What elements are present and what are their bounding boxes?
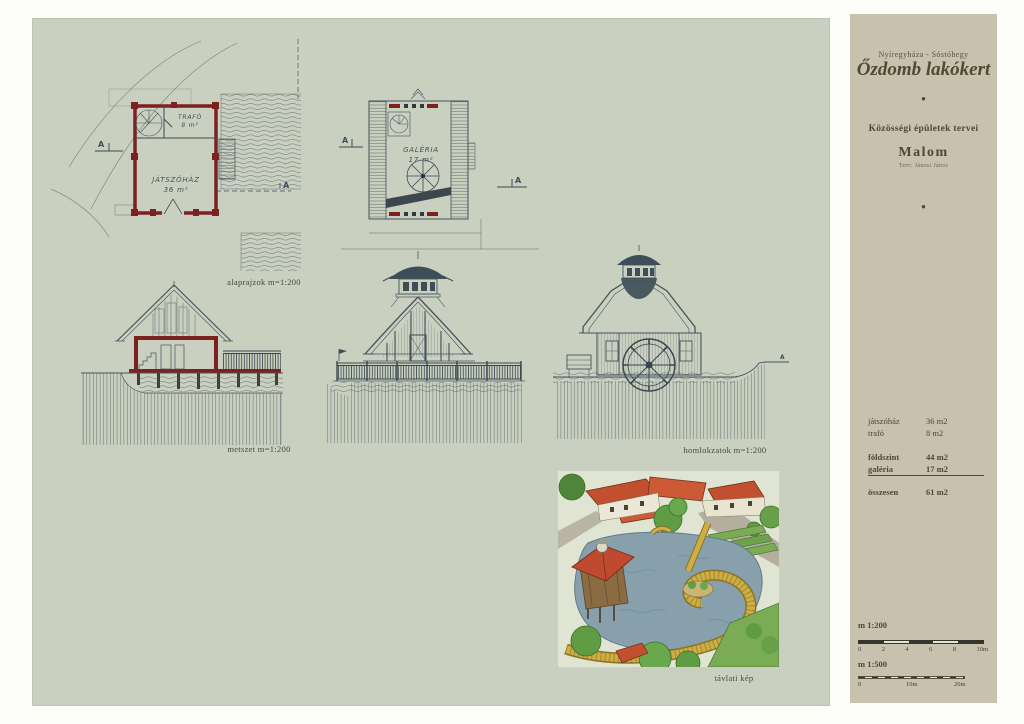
area-name: játszóház bbox=[868, 415, 926, 427]
area-value: 17 m2 bbox=[926, 463, 948, 475]
section-marker-a-right: A bbox=[515, 176, 522, 185]
tick: 0 bbox=[858, 646, 861, 653]
tick: 4 bbox=[905, 646, 908, 653]
area-name: összesen bbox=[868, 486, 926, 498]
area-value: 36 m2 bbox=[926, 415, 948, 427]
drawing-sheet: TRAFÓ 8 m² JÁTSZÓHÁZ 36 m² A A bbox=[32, 18, 830, 706]
room-area-jatszohaz: 36 m² bbox=[164, 186, 189, 194]
project-location: Nyíregyháza - Sóstóhegy bbox=[850, 50, 997, 59]
area-value: 44 m2 bbox=[926, 451, 948, 463]
area-table: játszóház 36 m2 trafó 8 m2 földszint 44 … bbox=[868, 415, 984, 498]
section-marker-a-right: A bbox=[283, 181, 290, 190]
section-drawing bbox=[61, 281, 311, 449]
caption-section: metszet m=1:200 bbox=[189, 444, 329, 454]
area-name: trafó bbox=[868, 427, 926, 439]
room-label-galeria: GALÉRIA bbox=[403, 145, 439, 154]
tick: 10m bbox=[906, 681, 918, 688]
scalebar-500 bbox=[858, 676, 965, 679]
tick: 2 bbox=[882, 646, 885, 653]
front-elevation-drawing bbox=[319, 249, 529, 447]
area-row: földszint 44 m2 bbox=[868, 451, 984, 463]
section-marker-a: A bbox=[780, 354, 785, 361]
scalebar-200 bbox=[858, 640, 984, 644]
section-marker-a-left: A bbox=[342, 136, 349, 145]
room-label-jatszohaz: JÁTSZÓHÁZ bbox=[150, 175, 199, 184]
gallery-floor-plan-drawing: GALÉRIA 17 m² A A bbox=[331, 81, 541, 266]
room-label-trafo: TRAFÓ bbox=[178, 114, 202, 121]
side-elevation-drawing: A bbox=[549, 241, 791, 449]
area-row: játszóház 36 m2 bbox=[868, 415, 984, 427]
tick: 0 bbox=[858, 681, 861, 688]
caption-elevations: homlokzatok m=1:200 bbox=[655, 445, 795, 455]
area-row: összesen 61 m2 bbox=[868, 486, 984, 498]
tick: 8 bbox=[953, 646, 956, 653]
area-row: trafó 8 m2 bbox=[868, 427, 984, 439]
architect-credit: Terv: Jánosi János bbox=[850, 163, 997, 169]
ground-floor-plan-drawing: TRAFÓ 8 m² JÁTSZÓHÁZ 36 m² A A bbox=[51, 39, 321, 274]
title-panel: Nyíregyháza - Sóstóhegy Őzdomb lakókert … bbox=[850, 14, 997, 703]
area-value: 61 m2 bbox=[926, 486, 948, 498]
sheet-subtitle: Közösségi épületek tervei bbox=[850, 124, 997, 134]
area-row: galéria 17 m2 bbox=[868, 463, 984, 476]
scalebar-200-label: m 1:200 bbox=[858, 620, 887, 630]
area-value: 8 m2 bbox=[926, 427, 943, 439]
presentation-board: TRAFÓ 8 m² JÁTSZÓHÁZ 36 m² A A bbox=[0, 0, 1024, 724]
building-name: Malom bbox=[850, 145, 997, 161]
area-name: galéria bbox=[868, 463, 926, 475]
area-name: földszint bbox=[868, 451, 926, 463]
divider-dot: ● bbox=[850, 94, 997, 103]
caption-perspective: távlati kép bbox=[664, 673, 804, 683]
room-area-galeria: 17 m² bbox=[409, 156, 434, 164]
scalebar-500-label: m 1:500 bbox=[858, 659, 887, 669]
tick: 20m bbox=[954, 681, 966, 688]
tick: 6 bbox=[929, 646, 932, 653]
perspective-view bbox=[558, 471, 779, 667]
project-title: Őzdomb lakókert bbox=[850, 59, 997, 81]
divider-dot: ● bbox=[850, 202, 997, 211]
section-marker-a-left: A bbox=[98, 140, 105, 149]
tick: 10m bbox=[976, 646, 988, 653]
scalebar-200-ticks: 0 2 4 6 8 10m bbox=[858, 646, 988, 653]
scalebar-500-ticks: 0 10m 20m bbox=[858, 681, 970, 689]
room-area-trafo: 8 m² bbox=[181, 122, 198, 129]
